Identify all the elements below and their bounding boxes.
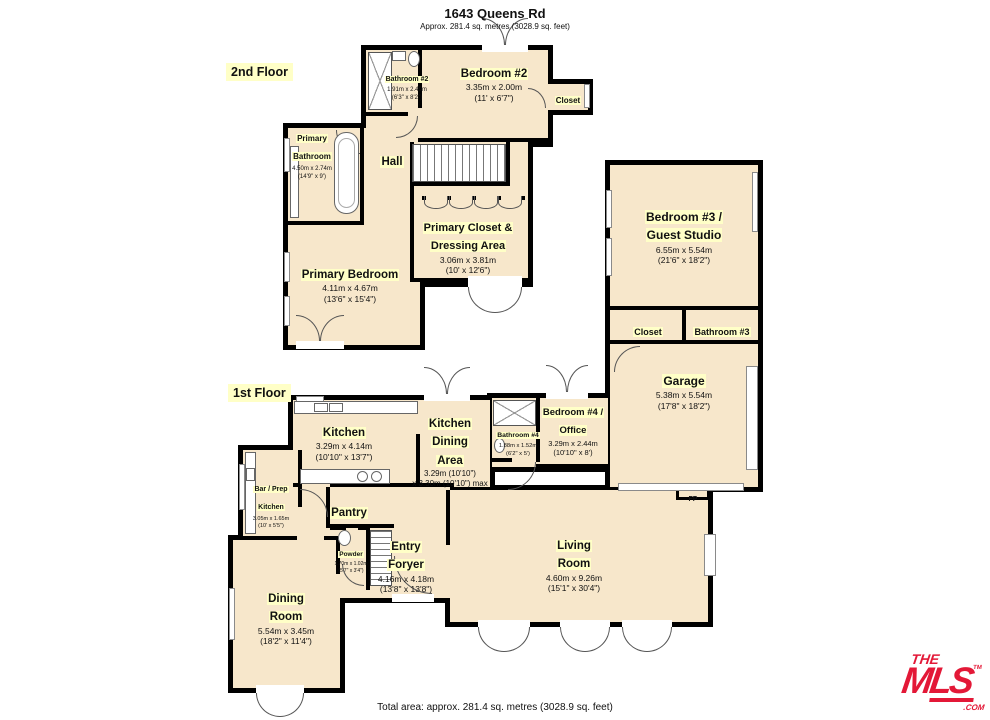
room-dims-ft: (15'1" x 30'4") [534,584,614,594]
garage-side-panel [746,366,758,470]
closet-door-scallop [498,196,522,209]
room-dims-m: 3.05m x 1.65m [240,516,302,522]
window [752,172,758,232]
door-arc [478,627,504,652]
kitchen-sink [329,403,343,412]
room-name: Dining Room [267,593,305,623]
room-label-kitchen-dining: Kitchen Dining Area 3.29m (10'10") x 3.3… [404,414,496,489]
room-label-bathroom3: Bathroom #3 [684,322,760,340]
door-arc [504,627,530,652]
wall [358,526,368,530]
room-dims-m: 4.16m x 4.18m [368,575,444,585]
room-dims-m: 3.35m x 2.00m [434,83,554,93]
room-dims-m: 3.06m x 3.81m [410,256,526,266]
room-dims-ft: (18'2" x 11'4") [246,637,326,647]
room-dims-m: 5.38m x 5.54m [634,391,734,401]
wall [536,464,608,468]
room-label-primary-closet: Primary Closet & Dressing Area 3.06m x 3… [410,218,526,276]
door-opening [468,276,522,287]
window [704,534,716,576]
fireplace-text: FP [689,496,698,503]
window [606,190,612,228]
mls-logo: THE MLSTM .COM [898,652,990,712]
door-arc [647,627,672,652]
room-label-bar-prep-kitchen: Bar / Prep Kitchen 3.05m x 1.65m (10' x … [240,478,302,529]
room-dims-m: 4.60m x 9.26m [534,574,614,584]
wall [360,128,364,225]
stove-burner [357,471,368,482]
room-dims-ft: (6'3" x 8'2") [378,95,436,102]
kitchen-counter [294,401,418,414]
room-name: Entry Foryer [387,541,425,571]
room-name: Living Room [556,540,592,570]
door-arc [424,367,447,394]
room-name: Powder [338,551,363,558]
room-name: Kitchen [322,427,366,439]
room-name: Bathroom #3 [693,327,750,337]
floorplan-canvas: 1643 Queens Rd Approx. 281.4 sq. metres … [0,0,990,720]
room-name: Garage [662,374,705,388]
closet-door-scallop [424,196,448,209]
room-label-primary-bedroom: Primary Bedroom 4.11m x 4.67m (13'6" x 1… [290,265,410,304]
room-name: Primary Bedroom [301,269,400,281]
shower-stall [493,400,536,426]
door-opening [296,341,344,349]
room-dims-ft: (21'6" x 18'2") [626,256,742,266]
door-arc [447,367,470,394]
room-dims-m: 4.50m x 2.74m [284,166,340,173]
door-opening [482,44,528,52]
toilet [408,51,420,67]
room-label-pantry: Pantry [324,503,374,521]
door-arc [495,287,522,313]
wall [288,221,360,225]
room-label-powder: Powder 1.70m x 1.02m (5'7" x 3'4") [332,543,370,575]
mls-logo-tm: TM [973,665,983,671]
sink [392,51,406,61]
door-opening [256,685,304,693]
room-dims-ft: (10'10" x 8') [534,449,612,457]
room-name: Bedroom #2 [460,68,528,80]
door-arc [468,287,495,313]
room-label-primary-bathroom: Primary Bathroom 4.50m x 2.74m (14'9" x … [284,128,340,180]
room-dims-ft: (13'6" x 15'4") [290,295,410,305]
room-dims-ft: (11' x 6'7") [434,94,554,104]
room-label-kitchen: Kitchen 3.29m x 4.14m (10'10" x 13'7") [295,423,393,462]
room-label-bedroom2: Bedroom #2 3.35m x 2.00m (11' x 6'7") [434,64,554,103]
room-label-hall: Hall [372,152,412,170]
room-name: Primary Bathroom [292,134,332,161]
room-label-bathroom2: Bathroom #2 1.91m x 2.49m (6'3" x 8'2") [378,68,436,102]
door-arc [546,365,567,392]
room-name: Bedroom #3 / Guest Studio [645,210,723,242]
wall [233,536,297,540]
room-label-dining-room: Dining Room 5.54m x 3.45m (18'2" x 11'4"… [246,589,326,647]
room-dims-ft: x 3.30m (10'10") max [404,480,496,489]
room-dims-ft: (13'8" x 13'8") [368,585,444,595]
wall [506,142,510,186]
room-dims-m: 4.11m x 4.67m [290,284,410,294]
page-subtitle: Approx. 281.4 sq. metres (3028.9 sq. fee… [0,22,990,31]
floor-label-2nd: 2nd Floor [226,63,293,81]
room-dims-m: 6.55m x 5.54m [626,246,742,256]
room-dims-ft: (10' x 12'6") [410,266,526,276]
room-label-living-room: Living Room 4.60m x 9.26m (15'1" x 30'4"… [534,536,614,594]
room-label-entry-foyer: Entry Foryer 4.16m x 4.18m (13'8" x 13'8… [368,537,444,595]
room-name: Closet [633,327,663,337]
room-label-bedroom3-closet: Closet [616,322,680,340]
room-name: Hall [380,156,403,168]
room-name: Primary Closet & Dressing Area [423,222,514,252]
closet-door-scallop [449,196,473,209]
total-area-text: Total area: approx. 281.4 sq. metres (30… [0,702,990,713]
room-dims-m: 3.29m (10'10") [404,470,496,479]
room-label-bedroom3: Bedroom #3 / Guest Studio 6.55m x 5.54m … [626,208,742,266]
room-label-bedroom2-closet: Closet [546,90,590,108]
room-name: Bathroom #2 [385,76,430,83]
room-name: Pantry [330,507,368,519]
closet-door-scallop [474,196,498,209]
staircase-2nd-floor [412,144,506,182]
fireplace-label: FP [676,488,710,506]
room-dims-ft: (17'8" x 18'2") [634,402,734,412]
floor-label-1st: 1st Floor [228,384,291,402]
window [229,588,235,640]
door-arc [560,627,585,652]
door-opening [392,594,434,602]
room-dims-m: 1.91m x 2.49m [378,87,436,94]
wall [412,278,470,282]
room-name: Bedroom #4 / Office [542,407,604,436]
door-arc [585,627,610,652]
room-dims-ft: (10' x 5'5") [240,523,302,529]
door-arc [622,627,647,652]
wall [418,138,548,142]
room-name: Kitchen Dining Area [428,418,472,467]
door-opening [546,391,588,399]
room-name: Closet [555,96,581,105]
mls-logo-com: .COM [898,703,985,712]
wall [410,182,510,186]
room-dims-ft: (10'10" x 13'7") [295,453,393,463]
bathtub-inner [338,138,355,208]
room-label-garage: Garage 5.38m x 5.54m (17'8" x 18'2") [634,372,734,411]
stove-burner [371,471,382,482]
room-dims-m: 5.54m x 3.45m [246,627,326,637]
room-dims-m: 3.29m x 4.14m [295,442,393,452]
door-opening [424,393,470,401]
room-dims-m: 3.29m x 2.44m [534,440,612,448]
window [606,238,612,276]
page-title: 1643 Queens Rd [0,6,990,21]
room-dims-ft: (5'7" x 3'4") [332,569,370,575]
room-dims-ft: (14'9" x 9') [284,174,340,181]
mls-logo-mls: MLS [899,660,974,701]
door-arc [567,365,588,392]
kitchen-sink [314,403,328,412]
wall [446,490,450,545]
room-label-bedroom4: Bedroom #4 / Office 3.29m x 2.44m (10'10… [534,402,612,458]
room-name: Bar / Prep Kitchen [253,486,288,511]
